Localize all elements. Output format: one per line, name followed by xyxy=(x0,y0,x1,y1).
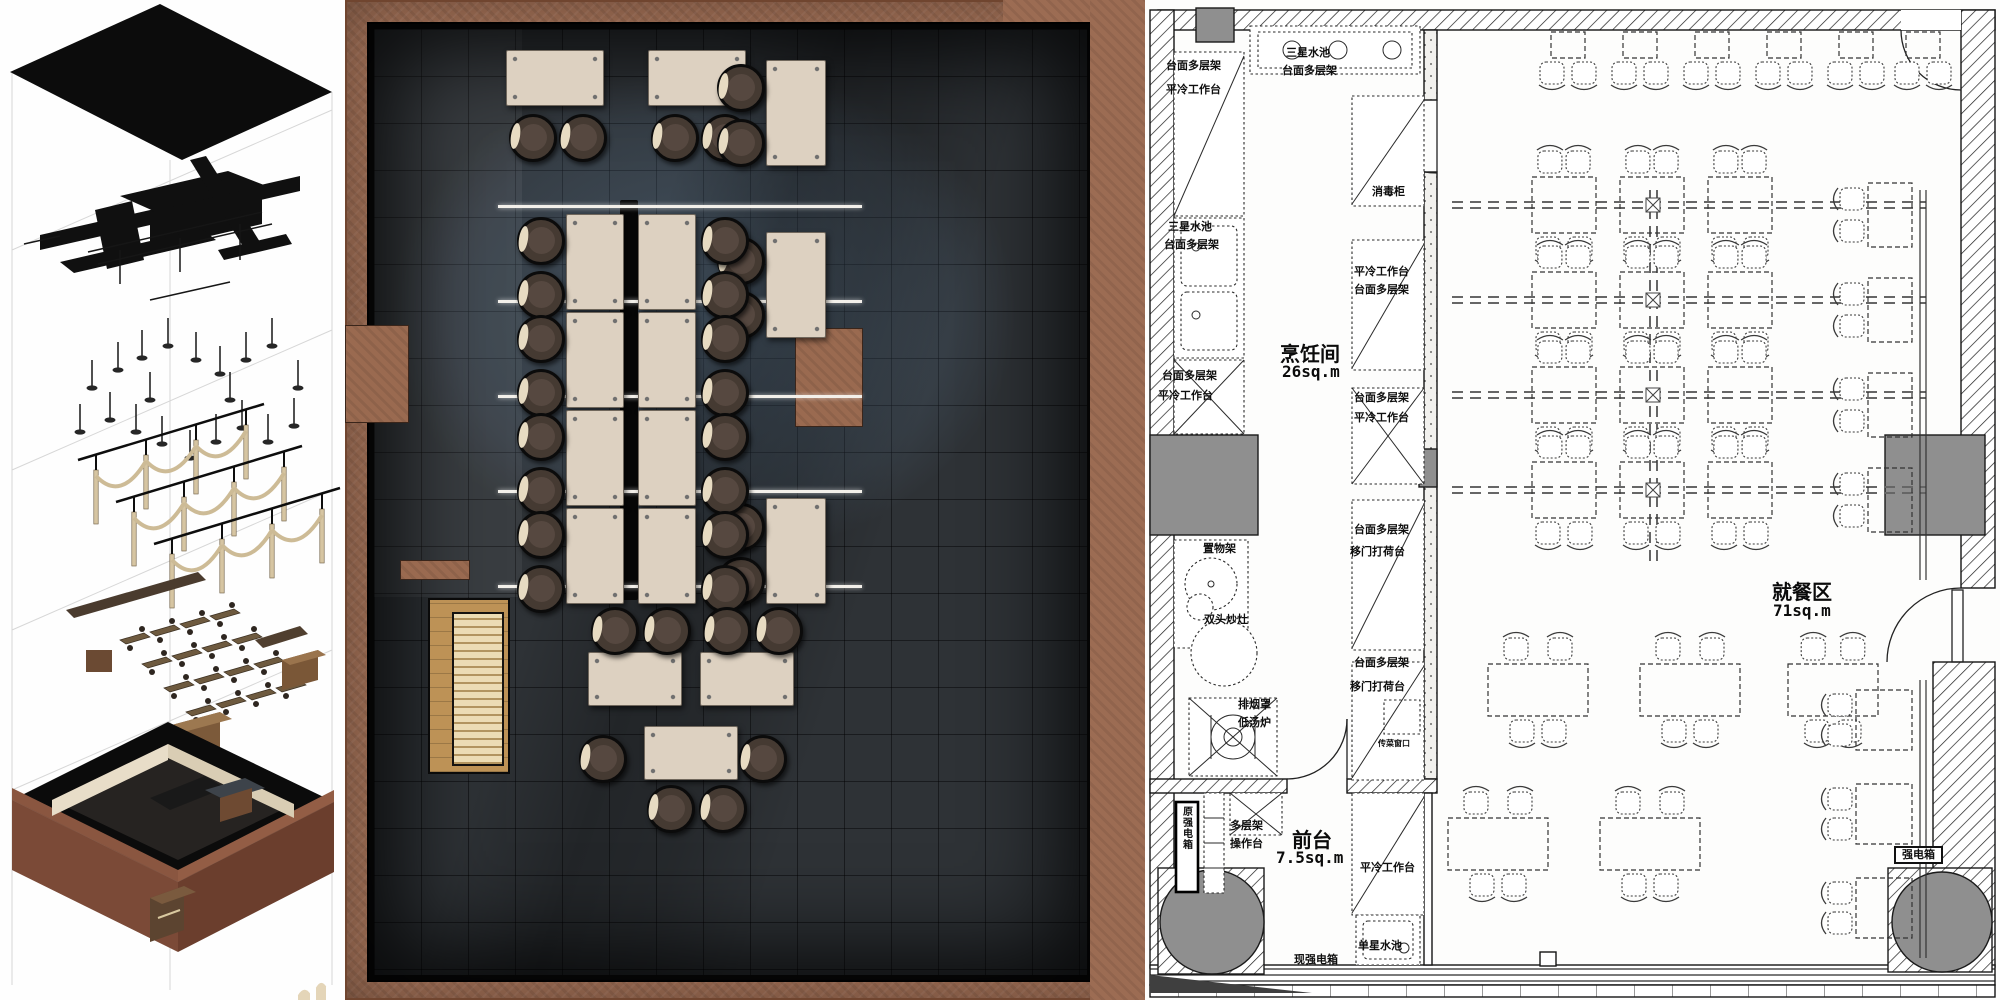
equipment-label: 台面多层架 xyxy=(1354,284,1409,296)
axon-chair xyxy=(169,618,175,624)
axon-chair xyxy=(205,698,211,704)
axon-chair xyxy=(139,626,145,632)
cad-plan-panel: 台面多层架平冷工作台三星水池台面多层架消毒柜三星水池台面多层架平冷工作台台面多层… xyxy=(1145,0,2000,1000)
render-stool xyxy=(701,511,749,559)
axon-chair xyxy=(283,693,289,699)
axon-table xyxy=(194,673,224,684)
axon-chair xyxy=(251,626,257,632)
axon-chair xyxy=(209,653,215,659)
axon-table xyxy=(164,681,194,692)
timber-arch xyxy=(234,473,284,498)
render-table xyxy=(766,60,826,166)
render-table xyxy=(644,726,738,780)
ceiling-plane-layer xyxy=(10,4,332,160)
axon-chair xyxy=(171,693,177,699)
cashier-counter xyxy=(452,612,504,766)
equipment-label: 台面多层架 xyxy=(1354,657,1409,669)
axon-chair xyxy=(157,637,163,643)
timber-arch-structure-layer xyxy=(78,404,340,608)
axon-chair xyxy=(243,658,249,664)
render-table xyxy=(566,312,624,408)
render-stool xyxy=(739,735,787,783)
cad-label-layer: 台面多层架平冷工作台三星水池台面多层架消毒柜三星水池台面多层架平冷工作台台面多层… xyxy=(1145,0,2000,1000)
wall-stub xyxy=(400,560,470,580)
axon-chair xyxy=(229,602,235,608)
render-stool xyxy=(701,315,749,363)
render-stool xyxy=(717,64,765,112)
render-stool xyxy=(517,217,565,265)
equipment-label: 移门打荷台 xyxy=(1350,681,1405,693)
axon-chair xyxy=(149,669,155,675)
equipment-label: 单星水池 xyxy=(1358,940,1402,952)
timber-arch xyxy=(134,503,184,528)
equipment-label: 现强电箱 xyxy=(1294,954,1338,966)
equipment-label: 传菜窗口 xyxy=(1378,740,1410,748)
pendant-light-shade xyxy=(215,371,226,376)
frame-right-band xyxy=(1090,0,1145,1000)
pendant-light-shade xyxy=(225,397,236,402)
pendant-light-shade xyxy=(145,397,156,402)
axon-chair xyxy=(253,701,259,707)
arched-door-panels xyxy=(238,982,326,1000)
render-table xyxy=(588,652,682,706)
timber-arch xyxy=(272,515,322,540)
pendant-light-shade xyxy=(267,343,278,348)
equipment-label: 台面多层架 xyxy=(1354,524,1409,536)
black-beam xyxy=(78,404,264,460)
axon-chair xyxy=(239,645,245,651)
pendant-light-shade xyxy=(105,417,116,422)
timber-arch xyxy=(96,461,146,486)
mep-ductwork-layer xyxy=(24,156,300,300)
equipment-label: 消毒柜 xyxy=(1372,186,1405,198)
rendered-plan-panel xyxy=(345,0,1145,1000)
render-stool xyxy=(701,467,749,515)
render-table xyxy=(566,410,624,506)
pendant-light-shade xyxy=(241,357,252,362)
axon-table xyxy=(120,633,150,644)
exploded-axon-panel xyxy=(0,0,345,1000)
pendant-light-shade xyxy=(157,441,168,446)
axon-table xyxy=(224,665,254,676)
pendant-light-shade xyxy=(131,429,142,434)
linear-light xyxy=(498,205,862,208)
render-furniture-layer xyxy=(345,0,1145,1000)
axon-table xyxy=(142,657,172,668)
axon-table xyxy=(246,689,276,700)
axon-table xyxy=(150,625,180,636)
render-stool xyxy=(517,271,565,319)
room-area-dining: 71sq.m xyxy=(1773,601,1831,620)
axon-chair xyxy=(127,645,133,651)
axon-chair xyxy=(179,661,185,667)
render-table xyxy=(766,232,826,338)
axon-table xyxy=(254,657,284,668)
pendant-light-shade xyxy=(191,357,202,362)
render-stool xyxy=(701,217,749,265)
render-stool xyxy=(701,271,749,319)
pendant-light-shade xyxy=(87,385,98,390)
render-stool xyxy=(579,735,627,783)
render-table xyxy=(638,312,696,408)
equipment-label: 低汤炉 xyxy=(1238,717,1271,729)
axon-chair xyxy=(265,682,271,688)
render-stool xyxy=(517,315,565,363)
equipment-label: 台面多层架 xyxy=(1354,392,1409,404)
timber-arch xyxy=(184,488,234,513)
render-table xyxy=(638,410,696,506)
timber-arch xyxy=(222,530,272,555)
equipment-label: 台面多层架 xyxy=(1282,65,1337,77)
design-board: 台面多层架平冷工作台三星水池台面多层架消毒柜三星水池台面多层架平冷工作台台面多层… xyxy=(0,0,2000,1000)
render-stool xyxy=(701,413,749,461)
axon-chair xyxy=(273,650,279,656)
render-stool xyxy=(517,369,565,417)
equipment-label: 平冷工作台 xyxy=(1354,266,1409,278)
axon-chair xyxy=(199,610,205,616)
equipment-label: 操作台 xyxy=(1230,838,1263,850)
render-table xyxy=(506,50,604,106)
exploded-axon-drawing xyxy=(0,0,345,1000)
equipment-label: 置物架 xyxy=(1203,543,1236,555)
axon-chair xyxy=(213,666,219,672)
render-table xyxy=(638,214,696,310)
axon-chair xyxy=(261,669,267,675)
render-stool xyxy=(559,114,607,162)
equipment-label: 平冷工作台 xyxy=(1354,412,1409,424)
render-stool xyxy=(647,785,695,833)
timber-arch xyxy=(196,431,246,456)
pendant-light-shade xyxy=(75,429,86,434)
axon-chair xyxy=(201,685,207,691)
render-stool xyxy=(517,467,565,515)
pendant-light-shade xyxy=(263,439,274,444)
render-stool xyxy=(699,785,747,833)
pendant-light-shade xyxy=(211,439,222,444)
equipment-label: 平冷工作台 xyxy=(1360,862,1415,874)
render-table xyxy=(566,214,624,310)
axon-chair xyxy=(183,674,189,680)
equipment-label: 多层架 xyxy=(1230,820,1263,832)
axon-table xyxy=(210,609,240,620)
render-stool xyxy=(591,607,639,655)
render-stool xyxy=(701,565,749,613)
pendant-light-shade xyxy=(137,355,148,360)
wall-stub xyxy=(795,328,863,427)
equipment-label: 台面多层架 xyxy=(1162,370,1217,382)
equipment-label: 平冷工作台 xyxy=(1158,390,1213,402)
render-stool xyxy=(717,119,765,167)
room-area-frontdesk: 7.5sq.m xyxy=(1276,848,1343,867)
equipment-label: 排烟罩 xyxy=(1238,699,1271,711)
equipment-label: 台面多层架 xyxy=(1166,60,1221,72)
render-table xyxy=(638,508,696,604)
axon-chair xyxy=(161,650,167,656)
axon-chair xyxy=(217,621,223,627)
render-table xyxy=(700,652,794,706)
render-stool xyxy=(701,369,749,417)
render-stool xyxy=(703,607,751,655)
axon-table xyxy=(180,617,210,628)
pendant-light-shade xyxy=(289,423,300,428)
axon-chair xyxy=(231,677,237,683)
render-stool xyxy=(517,413,565,461)
equipment-label: 三星水池 xyxy=(1286,47,1330,59)
equipment-label: 台面多层架 xyxy=(1164,239,1219,251)
render-stool xyxy=(517,511,565,559)
wall-stub xyxy=(345,325,409,423)
pendant-lights-layer xyxy=(75,318,304,461)
equipment-label: 平冷工作台 xyxy=(1166,84,1221,96)
render-stool xyxy=(643,607,691,655)
equipment-label: 移门打荷台 xyxy=(1350,546,1405,558)
pendant-light-shade xyxy=(163,343,174,348)
equipment-label: 三星水池 xyxy=(1168,221,1212,233)
render-stool xyxy=(651,114,699,162)
axon-chair xyxy=(191,642,197,648)
axon-chair xyxy=(223,709,229,715)
pendant-light-shade xyxy=(113,367,124,372)
timber-arch xyxy=(146,446,196,471)
render-table xyxy=(566,508,624,604)
room-area-kitchen: 26sq.m xyxy=(1282,362,1340,381)
axon-chair xyxy=(235,690,241,696)
pendant-light-shade xyxy=(293,385,304,390)
building-shell-layer xyxy=(12,722,334,1000)
equipment-label: 双头炒灶 xyxy=(1204,614,1248,626)
render-stool xyxy=(755,607,803,655)
axon-table xyxy=(172,649,202,660)
axon-chair xyxy=(187,629,193,635)
equipment-label: 强电箱 xyxy=(1894,846,1943,864)
render-stool xyxy=(509,114,557,162)
axon-chair xyxy=(221,634,227,640)
render-table xyxy=(766,498,826,604)
axon-table xyxy=(202,641,232,652)
render-stool xyxy=(517,565,565,613)
equipment-label: 原强电箱 xyxy=(1180,806,1191,850)
